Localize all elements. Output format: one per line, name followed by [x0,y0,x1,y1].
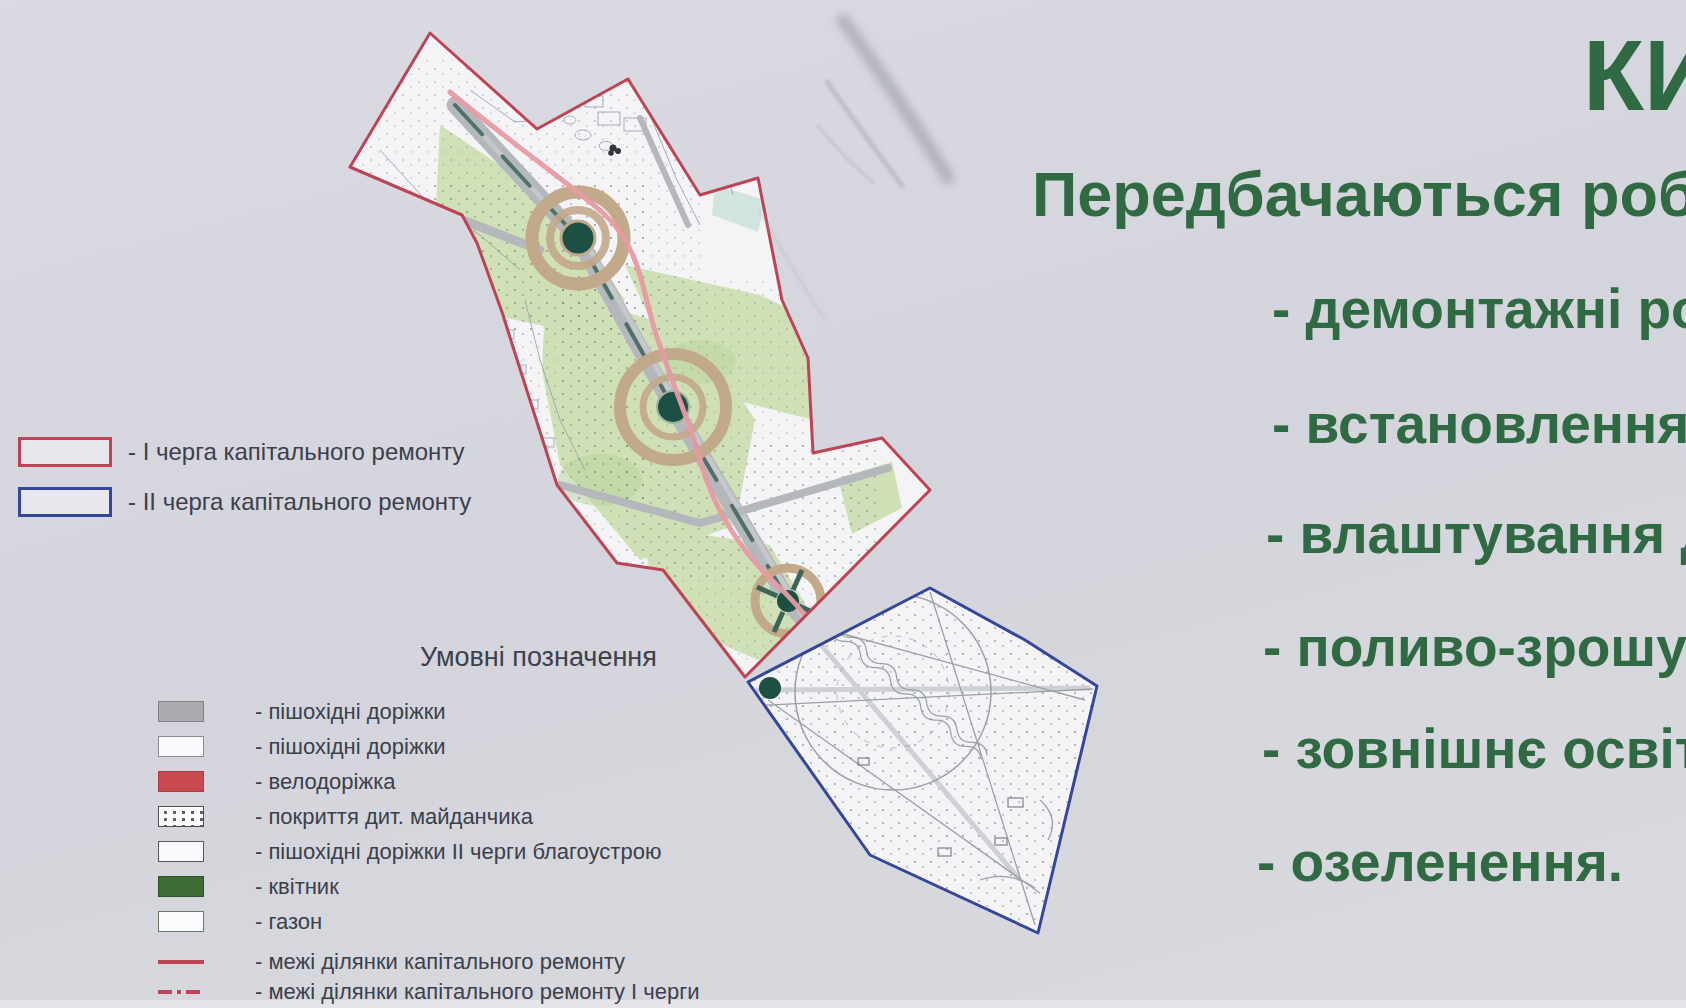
phase2-swatch [18,487,112,517]
legend-item: - покриття дит. майданчика [158,799,700,834]
legend-item: - межі ділянки капітального ремонту І че… [158,977,700,1007]
swatch-pedestrian-paths-gray [158,701,204,722]
photo-smudge [760,20,948,318]
work-item-demolition: - демонтажні роб [1272,277,1686,341]
board-title-fragment: КИ [1583,18,1686,133]
flowerbed-dot [759,677,781,699]
phase1-label: - І черга капітального ремонту [128,438,465,466]
work-item-paths: - влаштування до [1266,502,1686,566]
swatch-phase2-paths [158,841,204,862]
phase2-label: - ІІ черга капітального ремонту [128,488,471,516]
work-item-irrigation: - поливо-зрошува [1263,615,1686,679]
legend-item: - квітник [158,869,700,904]
legend-item: - пішохідні доріжки [158,729,700,764]
swatch-playground-surface [158,806,204,827]
phase1-content [360,60,902,718]
map-legend: - пішохідні доріжки - пішохідні доріжки … [158,694,700,1007]
swatch-repair-boundary-line [158,960,204,964]
work-item-installation: - встановлення ла [1272,392,1686,456]
phase-legend-item: - ІІ черга капітального ремонту [18,487,471,517]
map-legend-title: Умовні позначення [420,642,657,673]
swatch-bike-path [158,771,204,792]
work-item-lighting: - зовнішнє освітле [1262,717,1686,781]
swatch-pedestrian-paths-white [158,736,204,757]
swatch-flowerbed [158,876,204,897]
legend-item: - пішохідні доріжки ІІ черги благоустрою [158,834,700,869]
work-item-greening: - озеленення. [1257,830,1623,894]
phase-legend: - І черга капітального ремонту - ІІ черг… [18,437,471,537]
works-heading: Передбачаються роботи [1032,158,1686,230]
legend-item: - межі ділянки капітального ремонту [158,947,700,977]
legend-item: - газон [158,904,700,939]
legend-item: - пішохідні доріжки [158,694,700,729]
phase-legend-item: - І черга капітального ремонту [18,437,471,467]
swatch-repair-boundary-phase1-line [158,990,204,994]
swatch-lawn [158,911,204,932]
information-board-photo: { "colors": { "board_bg": "#d7d8de", "gr… [0,0,1686,1008]
legend-item: - велодоріжка [158,764,700,799]
phase1-swatch [18,437,112,467]
